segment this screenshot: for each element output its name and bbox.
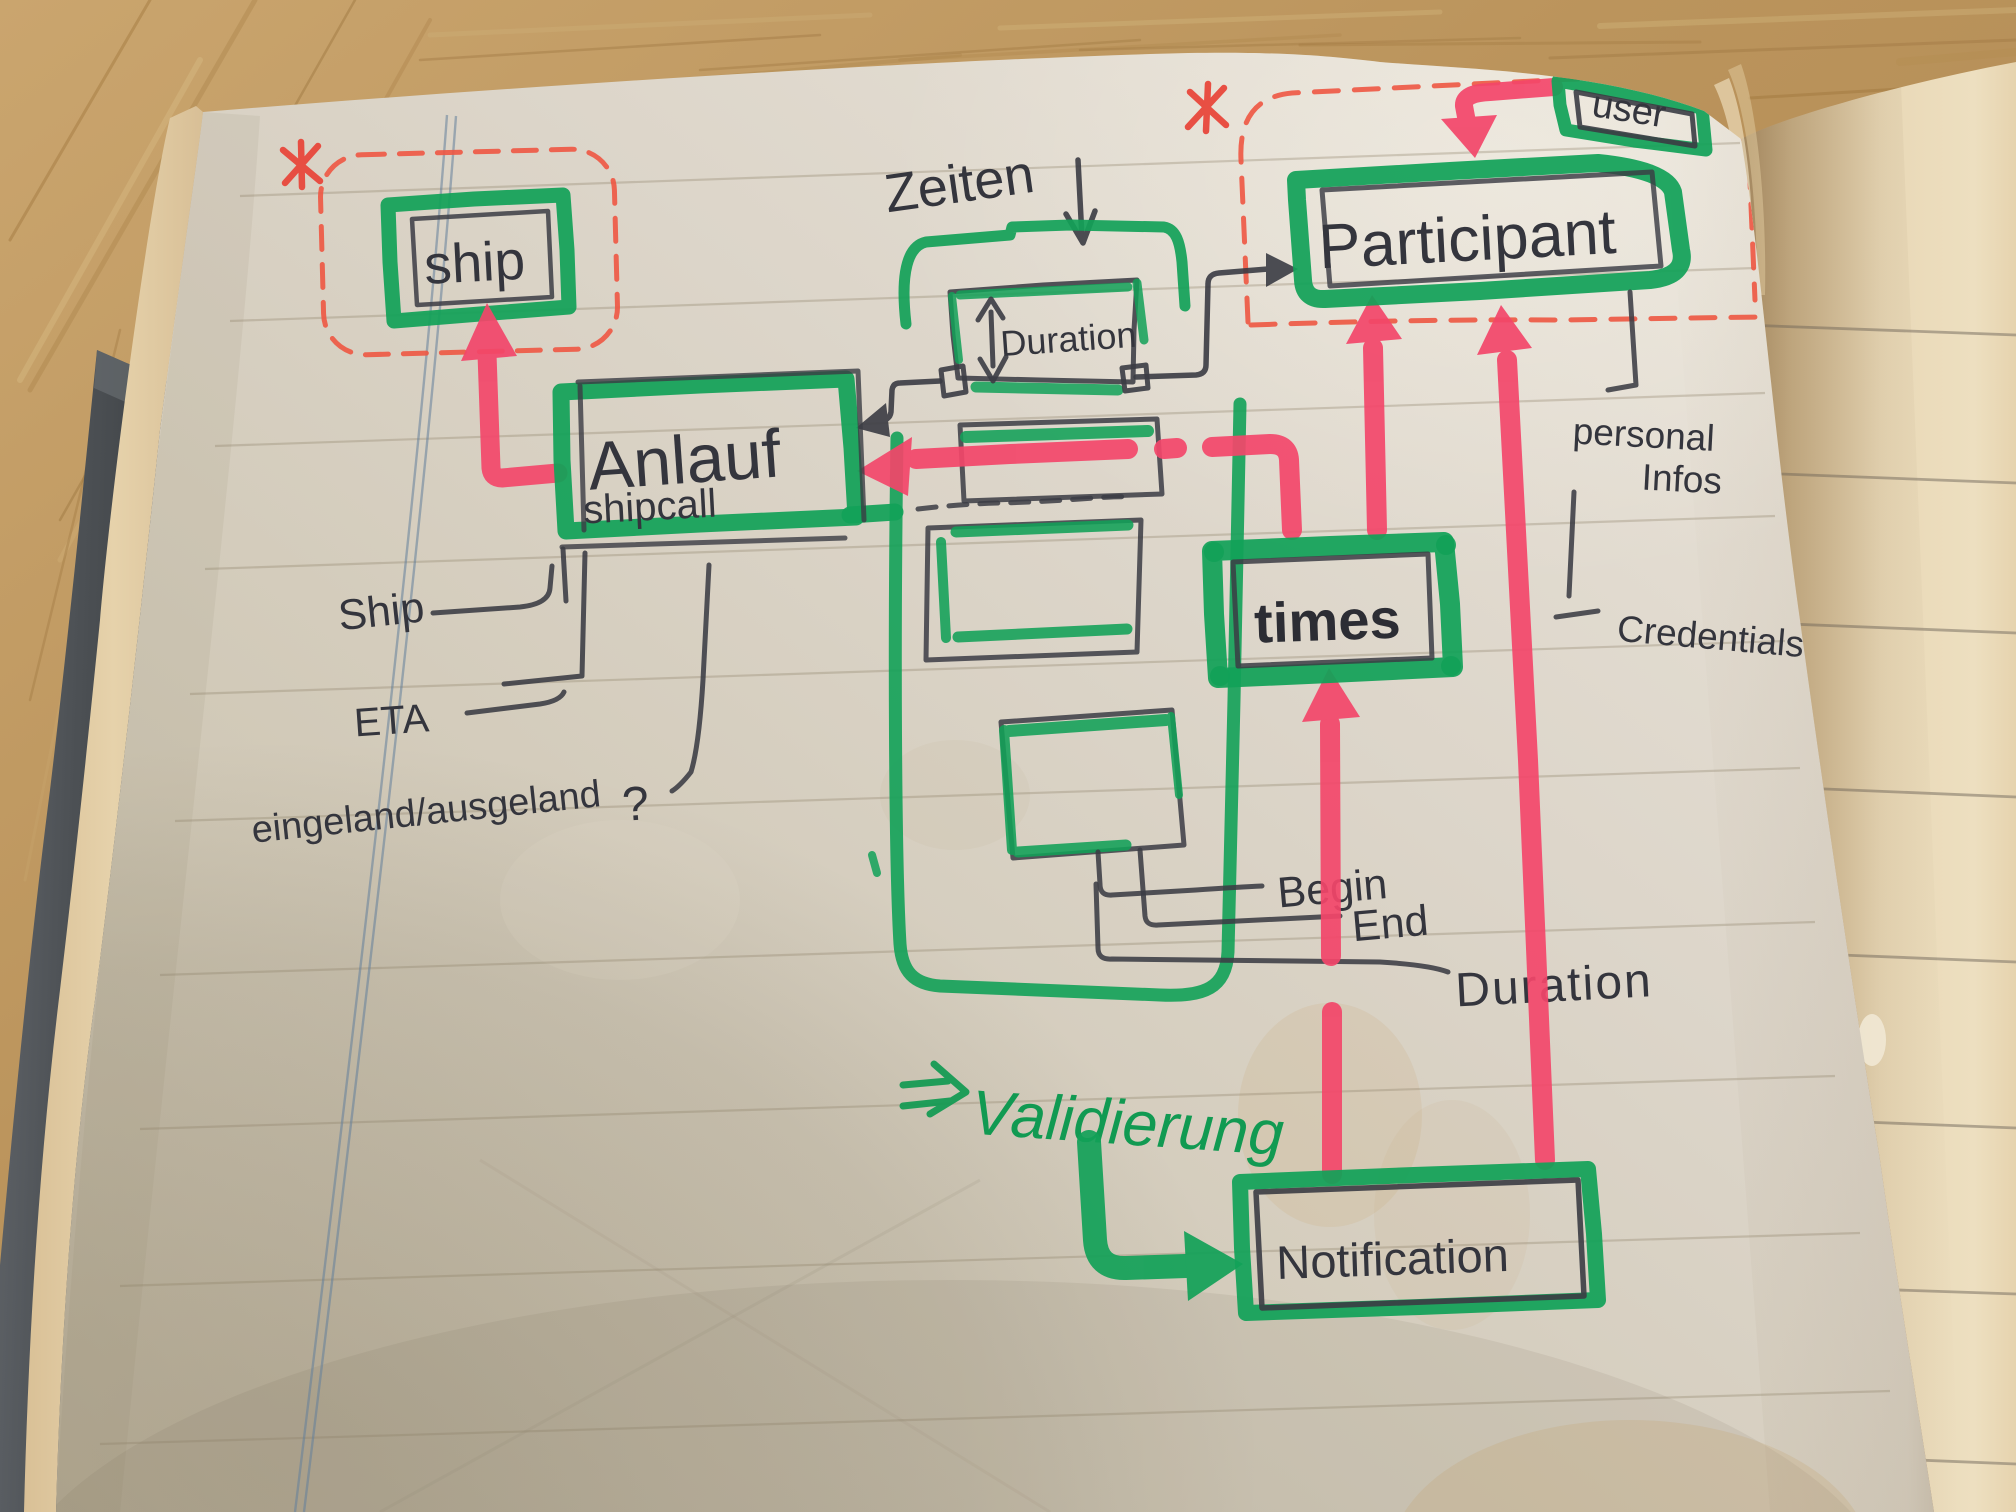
- svg-text:Notification: Notification: [1275, 1228, 1509, 1289]
- svg-text:ETA: ETA: [353, 696, 431, 745]
- svg-text:personal: personal: [1572, 411, 1716, 459]
- svg-text:Ship: Ship: [336, 584, 427, 641]
- svg-text:times: times: [1253, 587, 1401, 655]
- svg-text:Infos: Infos: [1641, 457, 1723, 502]
- svg-text:?: ?: [620, 777, 650, 832]
- svg-text:shipcall: shipcall: [582, 482, 718, 533]
- svg-text:ship: ship: [423, 229, 527, 296]
- svg-text:End: End: [1350, 897, 1430, 951]
- svg-text:Duration: Duration: [1454, 954, 1654, 1017]
